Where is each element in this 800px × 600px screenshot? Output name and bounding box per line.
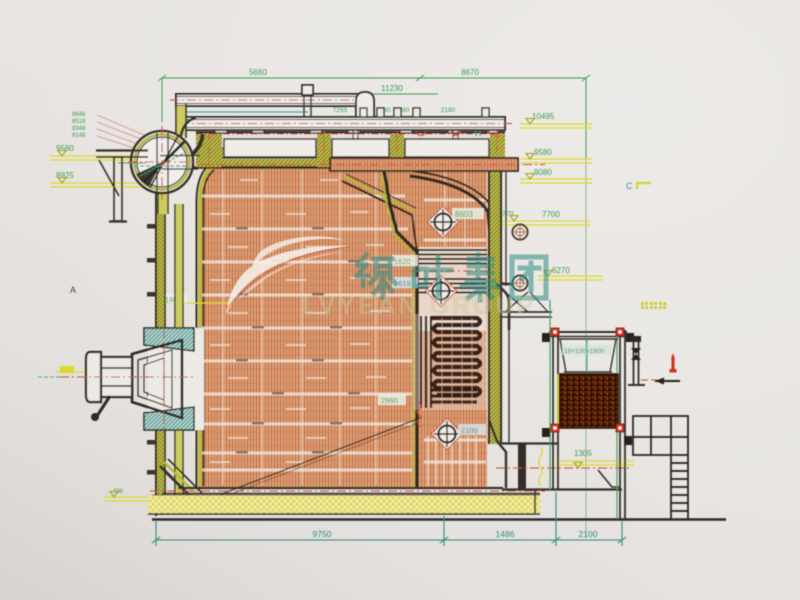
svg-text:8670: 8670 — [461, 68, 479, 77]
svg-text:7255: 7255 — [333, 107, 348, 114]
svg-text:11230: 11230 — [381, 84, 403, 93]
svg-text:10495: 10495 — [532, 112, 555, 121]
svg-text:LVYEAN GROUP: LVYEAN GROUP — [302, 292, 536, 320]
svg-text:2960: 2960 — [381, 396, 398, 405]
svg-text:9080: 9080 — [534, 168, 552, 177]
svg-text:1486: 1486 — [496, 529, 515, 539]
svg-text:6270: 6270 — [552, 266, 570, 275]
svg-text:5660: 5660 — [249, 68, 267, 77]
svg-text:9580: 9580 — [534, 148, 552, 157]
svg-text:8148: 8148 — [72, 133, 86, 139]
svg-text:1305: 1305 — [574, 449, 592, 458]
svg-text:7700: 7700 — [542, 210, 560, 219]
svg-text:8603: 8603 — [455, 210, 473, 219]
svg-text:A: A — [70, 285, 76, 295]
svg-text:2100: 2100 — [579, 529, 598, 539]
svg-text:C: C — [626, 181, 633, 191]
svg-text:2100: 2100 — [461, 426, 478, 435]
svg-text:18×100=1800: 18×100=1800 — [564, 348, 605, 355]
svg-text:8648: 8648 — [72, 112, 86, 118]
svg-text:1620: 1620 — [394, 257, 411, 266]
svg-text:770: 770 — [502, 211, 514, 218]
svg-text:2180: 2180 — [441, 107, 456, 114]
svg-text:8518: 8518 — [72, 119, 86, 125]
svg-text:9750: 9750 — [313, 529, 332, 539]
svg-text:8348: 8348 — [72, 126, 86, 132]
